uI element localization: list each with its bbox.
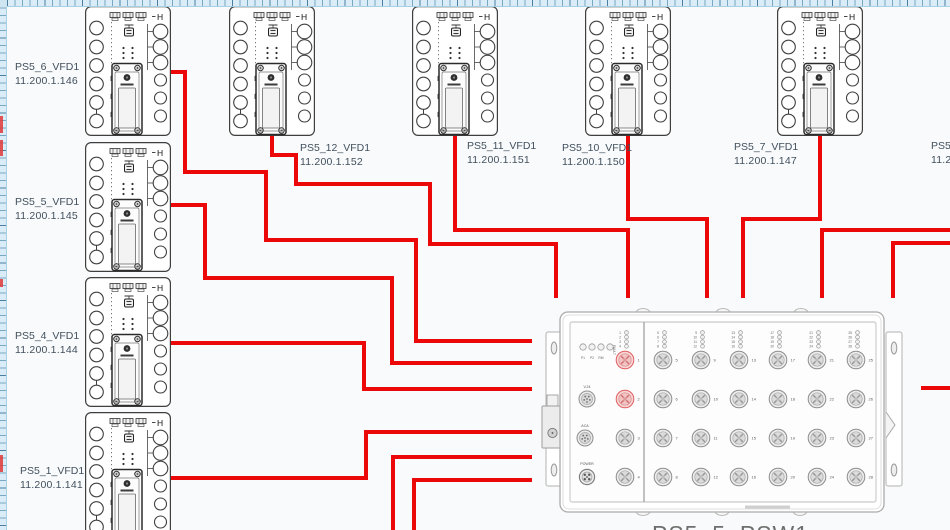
svg-text:2: 2 <box>619 336 621 340</box>
device-ip: 11.200.1.141 <box>20 478 84 492</box>
svg-text:4: 4 <box>619 345 621 349</box>
svg-text:P2: P2 <box>590 356 594 360</box>
ruler-left <box>0 0 7 530</box>
svg-text:23: 23 <box>809 340 813 344</box>
svg-text:26: 26 <box>869 397 874 402</box>
ruler-corner <box>0 0 7 7</box>
device-label-ps5_7_vfd1: PS5_7_VFD111.200.1.147 <box>734 140 798 168</box>
svg-text:9: 9 <box>695 331 697 335</box>
device-ps5_10_vfd1[interactable]: H <box>585 6 671 136</box>
switch-name-label: PS5_5_PSW1 <box>652 521 809 530</box>
wire-offscreen-right-1[interactable] <box>822 230 950 298</box>
svg-text:18: 18 <box>770 336 774 340</box>
diagram-canvas[interactable]: HPS5_6_VFD111.200.1.146HPS5_5_VFD111.200… <box>0 0 950 530</box>
h-mark-icon: H <box>657 12 663 22</box>
svg-text:12: 12 <box>714 475 719 480</box>
svg-text:12: 12 <box>693 345 697 349</box>
h-mark-icon: H <box>157 12 163 22</box>
svg-text:6: 6 <box>657 336 659 340</box>
svg-text:FAULT: FAULT <box>612 345 616 355</box>
switch-ps5_5_psw1[interactable]: P1P2RMFAULTV.24ACAPOWER12341234567856789… <box>540 296 910 522</box>
device-label-ps5_6_vfd1: PS5_6_VFD111.200.1.146 <box>15 60 79 88</box>
device-label-ps5_5_vfd1: PS5_5_VFD111.200.1.145 <box>15 195 79 223</box>
svg-text:21: 21 <box>809 331 813 335</box>
device-label-ps5_12_vfd1: PS5_12_VFD111.200.1.152 <box>300 141 370 169</box>
svg-text:22: 22 <box>809 336 813 340</box>
device-ps5_6_vfd1[interactable]: H <box>85 6 171 136</box>
svg-text:28: 28 <box>848 345 852 349</box>
svg-text:15: 15 <box>752 436 757 441</box>
svg-text:19: 19 <box>770 340 774 344</box>
svg-text:7: 7 <box>657 340 659 344</box>
svg-text:23: 23 <box>830 436 835 441</box>
ruler-marker <box>0 455 3 472</box>
svg-text:10: 10 <box>693 336 697 340</box>
h-mark-icon: H <box>849 12 855 22</box>
wire-offscreen-right-2[interactable] <box>893 243 950 298</box>
svg-text:13: 13 <box>752 358 757 363</box>
device-name: PS5_12_VFD1 <box>300 141 370 155</box>
svg-text:10: 10 <box>714 397 719 402</box>
device-ip: 11.200.1.152 <box>300 155 370 169</box>
wire-PS5_4_VFD1[interactable] <box>171 343 532 389</box>
device-name: PS5_1_VFD1 <box>20 464 84 478</box>
svg-text:22: 22 <box>830 397 835 402</box>
wire-PS5_10_VFD1[interactable] <box>628 134 707 298</box>
device-ip: 11.200.1.144 <box>15 343 79 357</box>
device-ps5_11_vfd1[interactable]: H <box>412 6 498 136</box>
svg-text:16: 16 <box>731 345 735 349</box>
wire-offscreen-bottom-2[interactable] <box>414 480 532 530</box>
device-ps5_4_vfd1[interactable]: H <box>85 277 171 407</box>
ruler-top <box>7 0 950 7</box>
svg-text:19: 19 <box>791 436 796 441</box>
device-ps5_1_vfd1[interactable]: H <box>85 412 171 530</box>
svg-text:24: 24 <box>809 345 813 349</box>
device-label-ps5_10_vfd1: PS5_10_VFD111.200.1.150 <box>562 141 632 169</box>
svg-text:17: 17 <box>791 358 796 363</box>
device-ip: 11.200.1.147 <box>734 154 798 168</box>
device-ps5_7_vfd1[interactable]: H <box>777 6 863 136</box>
svg-text:RM: RM <box>598 356 603 360</box>
svg-text:27: 27 <box>869 436 874 441</box>
device-name: PS5_10_VFD1 <box>562 141 632 155</box>
device-name: PS5_11_VFD1 <box>467 139 536 153</box>
svg-text:11: 11 <box>694 340 698 344</box>
h-mark-icon: H <box>157 148 163 158</box>
svg-text:17: 17 <box>770 331 774 335</box>
device-ip: 11.200.1.151 <box>467 153 536 167</box>
svg-text:1: 1 <box>619 331 621 335</box>
svg-text:14: 14 <box>731 336 735 340</box>
svg-text:28: 28 <box>869 475 874 480</box>
svg-text:26: 26 <box>848 336 852 340</box>
device-ip: 11.200.1 <box>931 153 950 167</box>
device-ps5_12_vfd1[interactable]: H <box>229 6 315 136</box>
svg-text:13: 13 <box>731 331 735 335</box>
device-name: PS5_6_VFD1 <box>15 60 79 74</box>
svg-text:5: 5 <box>657 331 659 335</box>
h-mark-icon: H <box>157 283 163 293</box>
svg-text:21: 21 <box>830 358 835 363</box>
svg-text:25: 25 <box>869 358 874 363</box>
svg-text:14: 14 <box>752 397 757 402</box>
svg-text:20: 20 <box>770 345 774 349</box>
device-name: PS5_4_VFD1 <box>15 329 79 343</box>
svg-text:20: 20 <box>791 475 796 480</box>
device-label-ps5_4_vfd1: PS5_4_VFD111.200.1.144 <box>15 329 79 357</box>
h-mark-icon: H <box>484 12 490 22</box>
device-ip: 11.200.1.145 <box>15 209 79 223</box>
h-mark-icon: H <box>157 418 163 428</box>
h-mark-icon: H <box>301 12 307 22</box>
svg-text:24: 24 <box>830 475 835 480</box>
ruler-marker <box>0 279 3 287</box>
device-label-ps5_1_vfd1: PS5_1_VFD111.200.1.141 <box>20 464 84 492</box>
device-ps5_5_vfd1[interactable]: H <box>85 142 171 272</box>
ruler-marker <box>0 116 3 133</box>
svg-text:15: 15 <box>731 340 735 344</box>
svg-text:ACA: ACA <box>581 424 589 428</box>
ruler-marker <box>0 140 3 156</box>
device-label-ps5_8: PS5_811.200.1 <box>931 139 950 167</box>
device-name: PS5_8 <box>931 139 950 153</box>
svg-text:V.24: V.24 <box>583 385 590 389</box>
svg-text:16: 16 <box>752 475 757 480</box>
svg-text:25: 25 <box>848 331 852 335</box>
device-name: PS5_5_VFD1 <box>15 195 79 209</box>
svg-text:P1: P1 <box>581 356 585 360</box>
device-ip: 11.200.1.146 <box>15 74 79 88</box>
svg-text:27: 27 <box>848 340 852 344</box>
svg-text:3: 3 <box>619 340 621 344</box>
device-label-ps5_11_vfd1: PS5_11_VFD111.200.1.151 <box>467 139 536 167</box>
svg-text:8: 8 <box>657 345 659 349</box>
svg-text:POWER: POWER <box>580 462 594 466</box>
svg-text:18: 18 <box>791 397 796 402</box>
device-name: PS5_7_VFD1 <box>734 140 798 154</box>
device-ip: 11.200.1.150 <box>562 155 632 169</box>
